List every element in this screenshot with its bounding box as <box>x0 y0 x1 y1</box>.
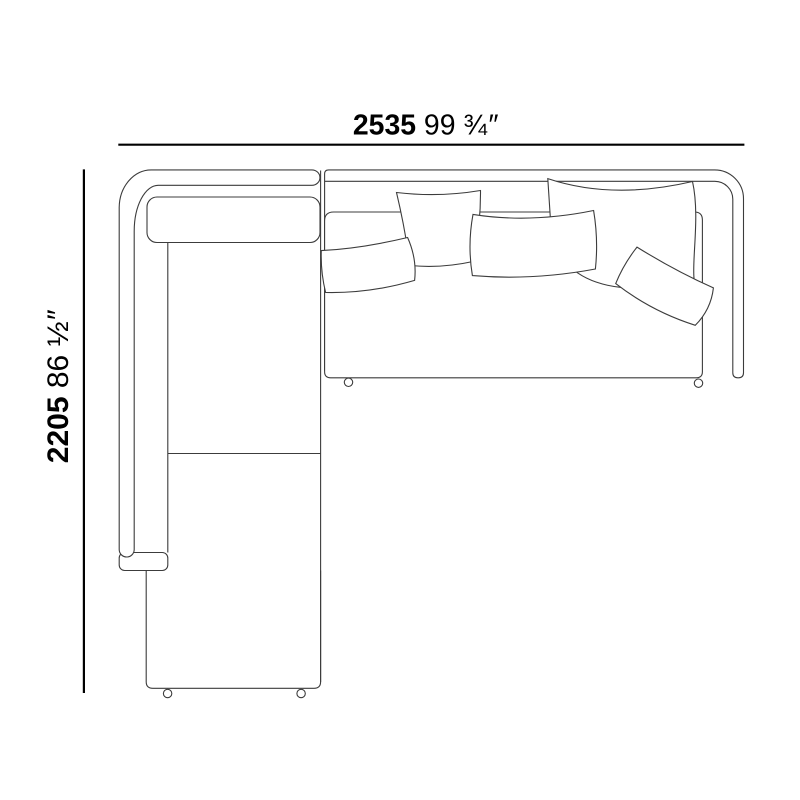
svg-text:2535 99 ¾″: 2535 99 ¾″ <box>353 109 498 141</box>
svg-text:2205 86 ½″: 2205 86 ½″ <box>42 309 75 463</box>
